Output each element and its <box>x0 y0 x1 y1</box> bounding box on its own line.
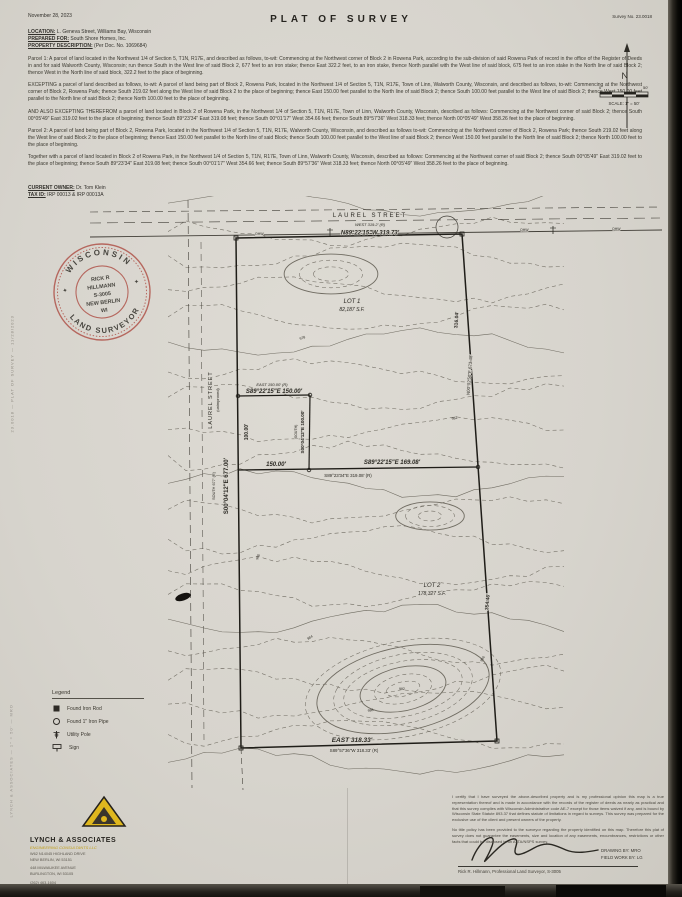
legend-item-label: Utility Pole <box>67 732 91 738</box>
contour-line <box>168 189 564 216</box>
contour-line <box>313 267 348 281</box>
ohw-label: OHW <box>612 227 621 231</box>
company-logo-icon <box>81 795 127 829</box>
svg-text:978: 978 <box>299 335 306 341</box>
west-record-dim: SOUTH 677' (R) <box>212 471 216 499</box>
left-edge-text-2: LYNCH & ASSOCIATES — 1" = 50' — MRO <box>9 588 14 818</box>
contour-line <box>168 637 564 665</box>
contour-line <box>168 243 564 268</box>
left-edge-text: 23.0018 — PLAT OF SURVEY — 11/28/2023 <box>10 173 15 433</box>
contour-line <box>396 502 465 530</box>
scan-edge-block <box>556 885 666 897</box>
scale-bar: 0 50' SCALE: 1" = 50' <box>599 85 648 106</box>
mid-record-dim: S89°23'34"E 319.08' (R) <box>324 473 372 478</box>
legend-item: Sign <box>52 743 144 752</box>
inset-east-bearing: S00°04'12"E 100.00' <box>300 411 305 454</box>
credits-block: DRAWING BY: MRO FIELD WORK BY: LG <box>601 847 643 862</box>
contour-line <box>168 556 564 584</box>
svg-text:992: 992 <box>399 687 405 691</box>
svg-text:984: 984 <box>307 634 314 640</box>
svg-text:N: N <box>620 70 629 81</box>
scale-label: SCALE: 1" = 50' <box>609 101 640 106</box>
found-iron-rod-icon <box>52 704 61 713</box>
inset-top-record: EAST 150.00' (R) <box>256 382 288 387</box>
mid-bearing-dim: S89°22'15"E 169.08' <box>364 460 421 466</box>
bottom-record-dim: S89°57'36"W 318.33' (R) <box>330 748 379 753</box>
certification-block: I certify that I have surveyed the above… <box>452 794 664 848</box>
road-lines <box>90 200 662 790</box>
fold-line <box>347 788 348 884</box>
company-block: LYNCH & ASSOCIATES ENGINEERING CONSULTAN… <box>30 795 160 886</box>
parcel-boundary <box>236 234 497 748</box>
company-tagline: ENGINEERING CONSULTANTS LLC <box>30 845 160 850</box>
north-arrow-icon: N <box>620 43 630 128</box>
top-record-dim: WEST 319.2' (R) <box>355 222 386 227</box>
monument-marks <box>234 232 499 750</box>
legend-item: Found 1" Iron Pipe <box>52 717 144 726</box>
ohw-label: OHW <box>255 232 264 236</box>
surveyor-name-line: Rick R. Hillmann, Professional Land Surv… <box>458 869 561 874</box>
company-addr-4: BURLINGTON, WI 53105 <box>30 872 160 878</box>
top-bearing-dim: N89°22'15"W 319.73' <box>341 231 400 237</box>
certification-paragraph-1: I certify that I have surveyed the above… <box>452 794 664 823</box>
legend-item: Found Iron Rod <box>52 704 144 713</box>
street-name-left: LAUREL STREET <box>208 371 214 428</box>
scale-zero: 0 <box>599 85 602 90</box>
contour-line <box>168 605 564 633</box>
signature-line <box>458 866 638 867</box>
scan-edge-block <box>420 886 505 897</box>
lot2-label: LOT 2 <box>424 583 441 589</box>
company-name: LYNCH & ASSOCIATES <box>30 837 160 844</box>
lot2-area: 178,327 S.F. <box>418 591 446 597</box>
drawing-by: DRAWING BY: MRO <box>601 847 643 854</box>
west-bearing-dim: S00°04'12"E 677.00' <box>224 457 230 514</box>
lot1-label: LOT 1 <box>344 299 361 305</box>
street-name-top: LAUREL STREET <box>333 213 407 219</box>
legend-item-label: Sign <box>69 745 79 751</box>
legend-item-label: Found 1" Iron Pipe <box>67 719 109 725</box>
east-length-lower: 354.46' <box>484 593 491 610</box>
legend-item: Utility Pole <box>52 730 144 739</box>
contour-line <box>168 384 564 410</box>
legend: Legend Found Iron Rod Found 1" Iron Pipe… <box>52 690 144 756</box>
lot1-area: 82,187 S.F. <box>339 307 364 313</box>
sign-icon <box>52 743 63 752</box>
scanned-plat-page: November 28, 2023 PLAT OF SURVEY Survey … <box>0 0 682 897</box>
scan-edge-right <box>668 0 682 897</box>
contour-line <box>168 691 564 718</box>
contour-line <box>406 505 455 526</box>
contour-line <box>168 417 564 442</box>
contour-line <box>168 328 564 355</box>
legend-title: Legend <box>52 690 144 699</box>
svg-text:982: 982 <box>451 416 458 421</box>
contour-line <box>168 304 564 329</box>
field-work-by: FIELD WORK BY: LG <box>601 854 643 861</box>
svg-text:980: 980 <box>255 553 261 560</box>
mid-left-length: 150.00' <box>266 462 286 468</box>
legend-item-label: Found Iron Rod <box>67 706 102 712</box>
company-address: W62 N14045 HIGHLAND DRIVE NEW BERLIN, WI… <box>30 852 160 886</box>
contour-line <box>418 511 441 521</box>
street-left-sub: (unimproved) <box>215 388 220 412</box>
bottom-bearing-dim: EAST 318.33' <box>332 737 373 744</box>
contour-line <box>299 260 362 288</box>
svg-text:986: 986 <box>479 655 485 662</box>
contour-line <box>168 526 564 554</box>
scale-fifty: 50' <box>643 85 648 90</box>
survey-drawing: N 0 50' SCALE: 1" = 50' <box>0 0 682 897</box>
contour-line <box>168 277 564 303</box>
contour-line <box>168 665 564 693</box>
contour-line <box>168 582 564 607</box>
found-iron-pipe-icon <box>52 717 61 726</box>
contour-line <box>168 359 564 384</box>
east-length-upper: 316.04' <box>453 311 460 328</box>
utility-pole-icon <box>52 730 61 739</box>
ohw-label: OHW <box>520 228 529 232</box>
inset-west-length: 100.00' <box>244 424 250 440</box>
inset-top-bearing: S89°22'15"E 150.00' <box>246 389 303 395</box>
svg-text:988: 988 <box>367 708 374 713</box>
scan-smudge <box>174 591 191 603</box>
inset-east-record: (SOUTH) <box>294 425 298 440</box>
company-addr-2: NEW BERLIN, WI 53151 <box>30 858 160 864</box>
certification-paragraph-2: No title policy has been provided to the… <box>452 827 664 844</box>
